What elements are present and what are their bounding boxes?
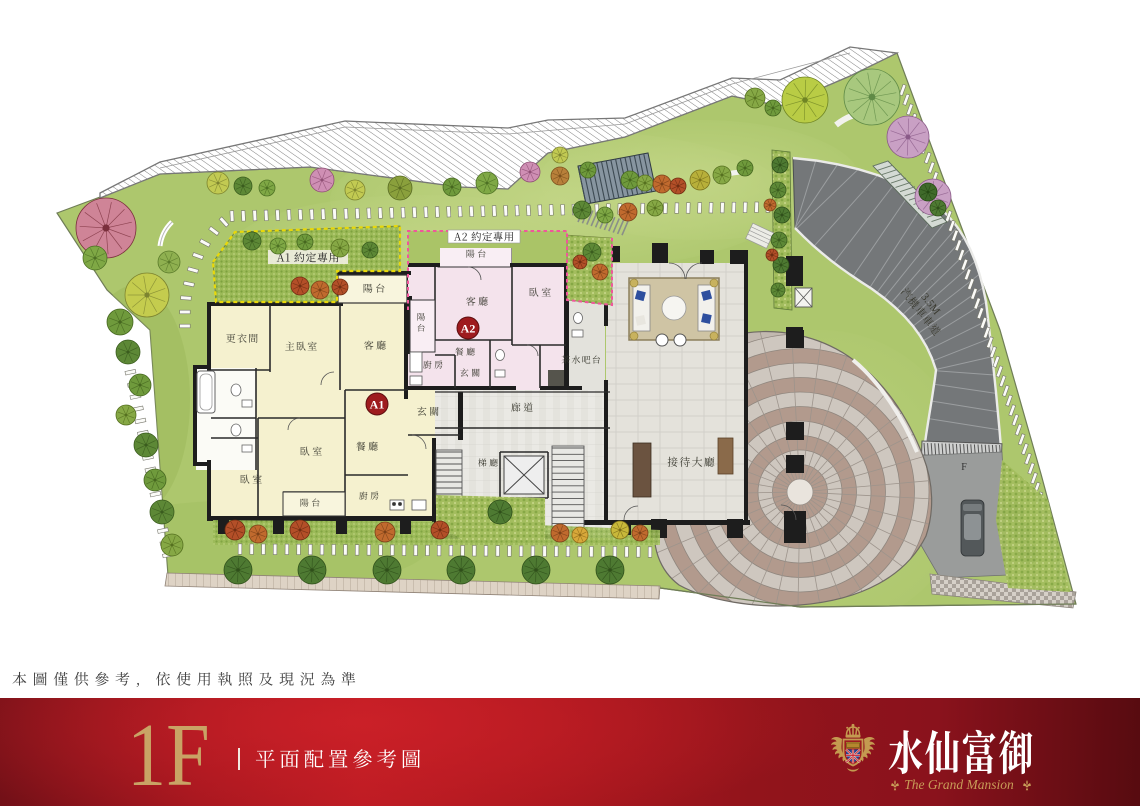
svg-text:F: F [961, 462, 967, 473]
svg-text:A2: A2 [461, 322, 476, 336]
svg-text:A1: A1 [370, 398, 385, 412]
